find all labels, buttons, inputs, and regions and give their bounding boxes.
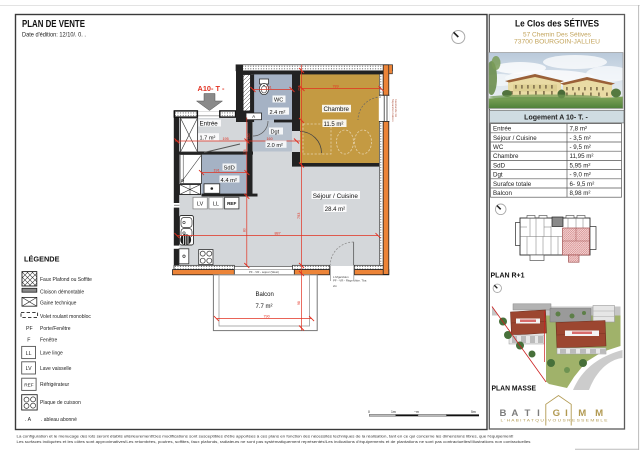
svg-text:80: 80 [242, 228, 246, 232]
svg-text:LV: LV [26, 366, 32, 372]
svg-text:11.5 m²: 11.5 m² [324, 122, 344, 128]
svg-text:191: 191 [214, 168, 220, 172]
svg-text:PF - VR - séjour (West): PF - VR - séjour (West) [249, 270, 279, 274]
svg-text:Balcon: Balcon [256, 292, 274, 298]
svg-text:SdD: SdD [493, 162, 506, 169]
svg-text:Faux Plafond ou Soffite: Faux Plafond ou Soffite [40, 277, 92, 283]
svg-text:Séjour / Cuisine: Séjour / Cuisine [313, 193, 359, 200]
svg-text:57 Chemin Des Sétives: 57 Chemin Des Sétives [523, 32, 592, 39]
svg-text:T: T [524, 408, 530, 419]
svg-text:Entrée: Entrée [493, 126, 512, 133]
svg-text:Dgt: Dgt [493, 172, 503, 179]
svg-text:2.4 m²: 2.4 m² [270, 110, 286, 116]
svg-text:Logement A 10- T. -: Logement A 10- T. - [524, 114, 588, 121]
svg-text:A10- T -: A10- T - [198, 84, 225, 93]
svg-text:Entrée: Entrée [200, 121, 219, 128]
svg-text:0: 0 [368, 410, 370, 414]
svg-text:Balcon: Balcon [493, 190, 512, 197]
svg-text:789: 789 [333, 84, 339, 88]
svg-text:L ' H A B I T A T Q U I V: L ' H A B I T A T Q U I V O U S R E S S … [501, 418, 609, 422]
svg-text:5m: 5m [471, 410, 476, 414]
svg-text:Gaine technique: Gaine technique [40, 300, 77, 306]
svg-text:Séjour / Cuisine: Séjour / Cuisine [493, 135, 537, 142]
svg-text:~m: ~m [414, 410, 419, 414]
svg-text:PF: PF [26, 326, 33, 332]
svg-text:1.7 m²: 1.7 m² [200, 135, 216, 141]
svg-text:I: I [565, 408, 568, 419]
svg-text:- 9,5 m²: - 9,5 m² [570, 144, 591, 151]
svg-text:- 3,5 m²: - 3,5 m² [570, 135, 591, 142]
svg-text:176: 176 [243, 149, 247, 155]
svg-text:. A: . A [25, 417, 32, 423]
svg-text:1m: 1m [391, 410, 396, 414]
svg-text:WC: WC [274, 98, 283, 104]
svg-text:98: 98 [297, 301, 301, 305]
svg-text:Volet roulant monobloc: Volet roulant monobloc [40, 314, 91, 320]
svg-text:Dgt: Dgt [271, 130, 280, 136]
svg-text:translucide 1m: translucide 1m [394, 99, 398, 118]
svg-text:SdD: SdD [224, 166, 235, 172]
svg-text:7.7 m²: 7.7 m² [256, 304, 273, 310]
svg-text:73700 BOURGOIN-JALLIEU: 73700 BOURGOIN-JALLIEU [514, 39, 600, 46]
svg-text:LÉGENDE: LÉGENDE [24, 255, 60, 264]
svg-text:LV: LV [197, 201, 204, 207]
svg-text:PLAN MASSE: PLAN MASSE [492, 383, 537, 392]
svg-text:Porte/Fenêtre: Porte/Fenêtre [40, 326, 71, 332]
svg-text:B: B [500, 408, 507, 419]
svg-text:La configuration et le menucag: La configuration et le menucage des lots… [17, 434, 514, 438]
svg-text:795: 795 [297, 85, 301, 91]
svg-text:REF: REF [24, 383, 34, 388]
svg-text:PLAN R+1: PLAN R+1 [491, 272, 525, 279]
svg-text:2m: 2m [333, 284, 338, 288]
svg-text:Surafce totale: Surafce totale [493, 181, 532, 188]
svg-text:F: F [27, 337, 30, 343]
svg-text:M: M [578, 408, 586, 419]
svg-text:Le Clos des SÉTIVES: Le Clos des SÉTIVES [515, 18, 599, 29]
svg-text:6- 9,5 m²: 6- 9,5 m² [570, 181, 595, 188]
svg-text:Réfrigérateur: Réfrigérateur [40, 382, 70, 388]
svg-text:150: 150 [247, 133, 251, 139]
svg-text:Les surfaces indiquées et les: Les surfaces indiquées et les côtes sont… [17, 440, 531, 444]
svg-text:7,8 m²: 7,8 m² [570, 126, 588, 133]
svg-text:M: M [595, 408, 603, 419]
svg-text:. ableau abonné: . ableau abonné [41, 417, 77, 423]
svg-text:A: A [511, 408, 518, 419]
svg-text:Plaque de cuisson: Plaque de cuisson [40, 400, 81, 406]
svg-text:REF: REF [227, 201, 236, 206]
svg-text:LL: LL [213, 201, 219, 207]
svg-text:PF - VR - Rége chbe. Tba: PF - VR - Rége chbe. Tba [333, 278, 367, 282]
svg-text:Chambre: Chambre [324, 106, 350, 113]
svg-text:195: 195 [223, 137, 229, 141]
svg-text:191: 191 [266, 85, 272, 89]
svg-text:Lave vaisselle: Lave vaisselle [40, 366, 72, 372]
svg-text:793: 793 [297, 213, 301, 219]
svg-text:2.0 m²: 2.0 m² [267, 143, 283, 149]
svg-text:LL: LL [26, 351, 32, 357]
svg-text:28.4 m²: 28.4 m² [325, 207, 345, 213]
svg-text:- 9,0 m²: - 9,0 m² [570, 172, 591, 179]
svg-text:4.4 m²: 4.4 m² [221, 178, 237, 184]
svg-text:790: 790 [264, 314, 270, 318]
svg-text:I: I [537, 408, 540, 419]
svg-text:PLAN DE VENTE: PLAN DE VENTE [22, 19, 85, 30]
svg-text:Lave linge: Lave linge [40, 351, 63, 357]
svg-text:Chambre: Chambre [493, 153, 519, 160]
svg-text:Date d'édition: 12/10/. 0. .: Date d'édition: 12/10/. 0. . [22, 32, 86, 39]
svg-text:Cloison démontable: Cloison démontable [40, 289, 84, 295]
svg-text:11,95 m²: 11,95 m² [570, 153, 594, 160]
svg-text:8,98 m²: 8,98 m² [570, 190, 591, 197]
svg-text:WC: WC [493, 144, 504, 151]
svg-text:887: 887 [275, 231, 281, 235]
svg-text:160: 160 [267, 137, 273, 141]
svg-text:5,95 m²: 5,95 m² [570, 162, 591, 169]
svg-text:G: G [553, 408, 560, 419]
svg-text:Fenêtre: Fenêtre [40, 337, 57, 343]
